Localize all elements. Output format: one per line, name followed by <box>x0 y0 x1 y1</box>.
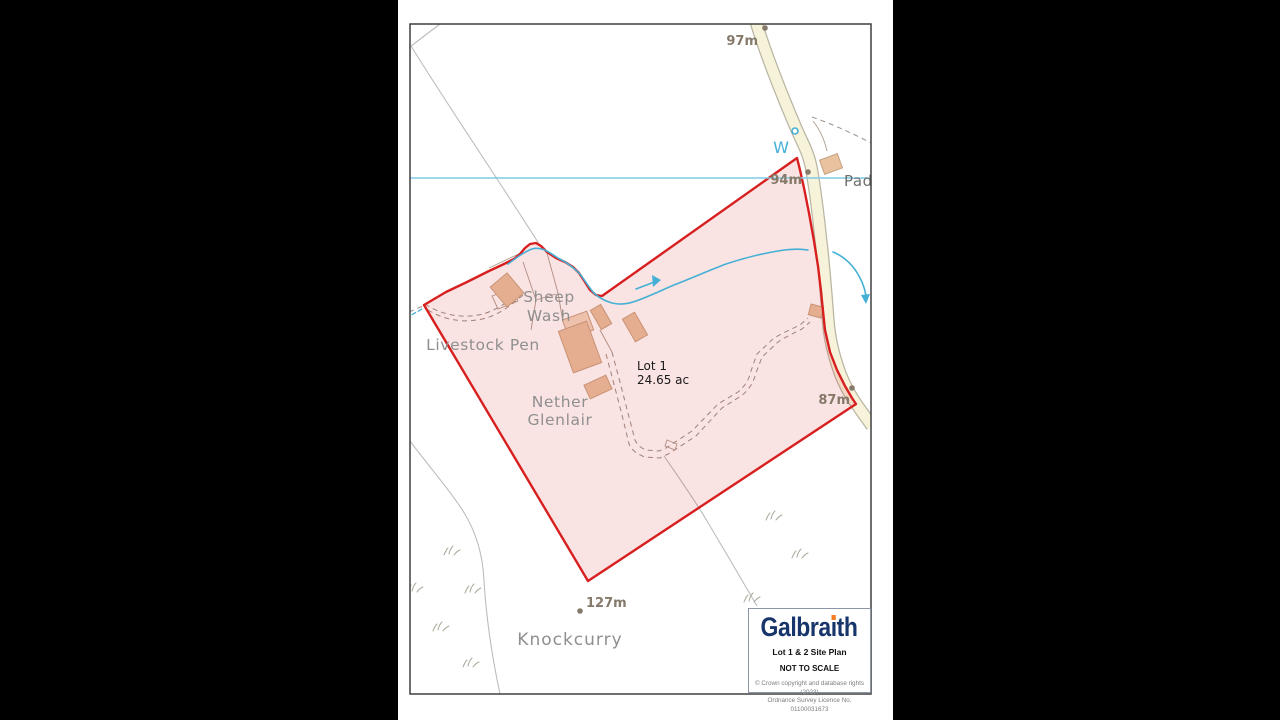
spot-height-dot <box>849 385 855 391</box>
label-knockcurry: Knockcurry <box>517 630 622 650</box>
letterbox-right <box>893 0 1280 720</box>
watercourse <box>406 309 422 318</box>
spot-height-dot <box>805 169 811 175</box>
copyright-line1: © Crown copyright and database rights (2… <box>749 680 870 697</box>
well-icon <box>792 128 798 134</box>
rough-grassland-icon <box>766 511 782 520</box>
spot-height-dot <box>762 25 768 31</box>
label-livestock-pen: Livestock Pen <box>426 336 540 354</box>
site-plan-page: 97m94m87m127mSheepWashLivestock PenNethe… <box>398 0 893 720</box>
copyright-note: © Crown copyright and database rights (2… <box>749 680 870 714</box>
label-sheep-wash-line1: Sheep <box>523 288 575 306</box>
label-nether-glenlair-line2: Glenlair <box>528 411 593 429</box>
map-content: 97m94m87m127mSheepWashLivestock PenNethe… <box>406 22 883 694</box>
galbraith-logo: Galbraıth <box>761 612 858 642</box>
watercourse <box>833 252 866 299</box>
spot-height-label: 94m <box>770 173 802 188</box>
field-boundary-line <box>411 24 440 46</box>
title-box: Galbraıth Lot 1 & 2 Site Plan NOT TO SCA… <box>748 608 871 693</box>
label-nether-glenlair-line1: Nether <box>532 393 589 411</box>
spot-height-label: 97m <box>726 34 758 49</box>
farm-track <box>812 117 871 143</box>
label-lot1-title: Lot 1 <box>637 359 667 373</box>
label-well-label: W <box>773 138 789 157</box>
plan-title: Lot 1 & 2 Site Plan <box>749 647 870 657</box>
building <box>820 154 843 175</box>
label-padd: Padd <box>844 172 883 190</box>
letterbox-left <box>0 0 398 720</box>
label-lot1-area: 24.65 ac <box>637 373 689 387</box>
spot-height-label: 87m <box>818 393 850 408</box>
spot-height-dot <box>577 608 583 614</box>
rough-grassland-icon <box>463 658 479 667</box>
spot-height-label: 127m <box>586 596 627 611</box>
rough-grassland-icon <box>433 622 449 631</box>
field-boundary-line <box>410 441 500 694</box>
label-sheep-wash-line2: Wash <box>527 307 571 325</box>
logo-letter-i: ı <box>831 612 837 642</box>
logo-i-dot-icon <box>832 615 836 620</box>
scale-note: NOT TO SCALE <box>749 664 870 673</box>
rough-grassland-icon <box>792 549 808 558</box>
copyright-line2: Ordnance Survey Licence No. 01100031673 <box>749 697 870 714</box>
rough-grassland-icon <box>465 584 481 593</box>
field-boundary-line <box>411 46 541 247</box>
rough-grassland-icon <box>444 546 460 555</box>
yard-fence-line <box>813 121 827 151</box>
logo-text-post: th <box>837 612 858 642</box>
logo-text-pre: Galbra <box>761 612 831 642</box>
flow-arrow-icon <box>861 294 870 304</box>
screenshot-stage: 97m94m87m127mSheepWashLivestock PenNethe… <box>0 0 1280 720</box>
